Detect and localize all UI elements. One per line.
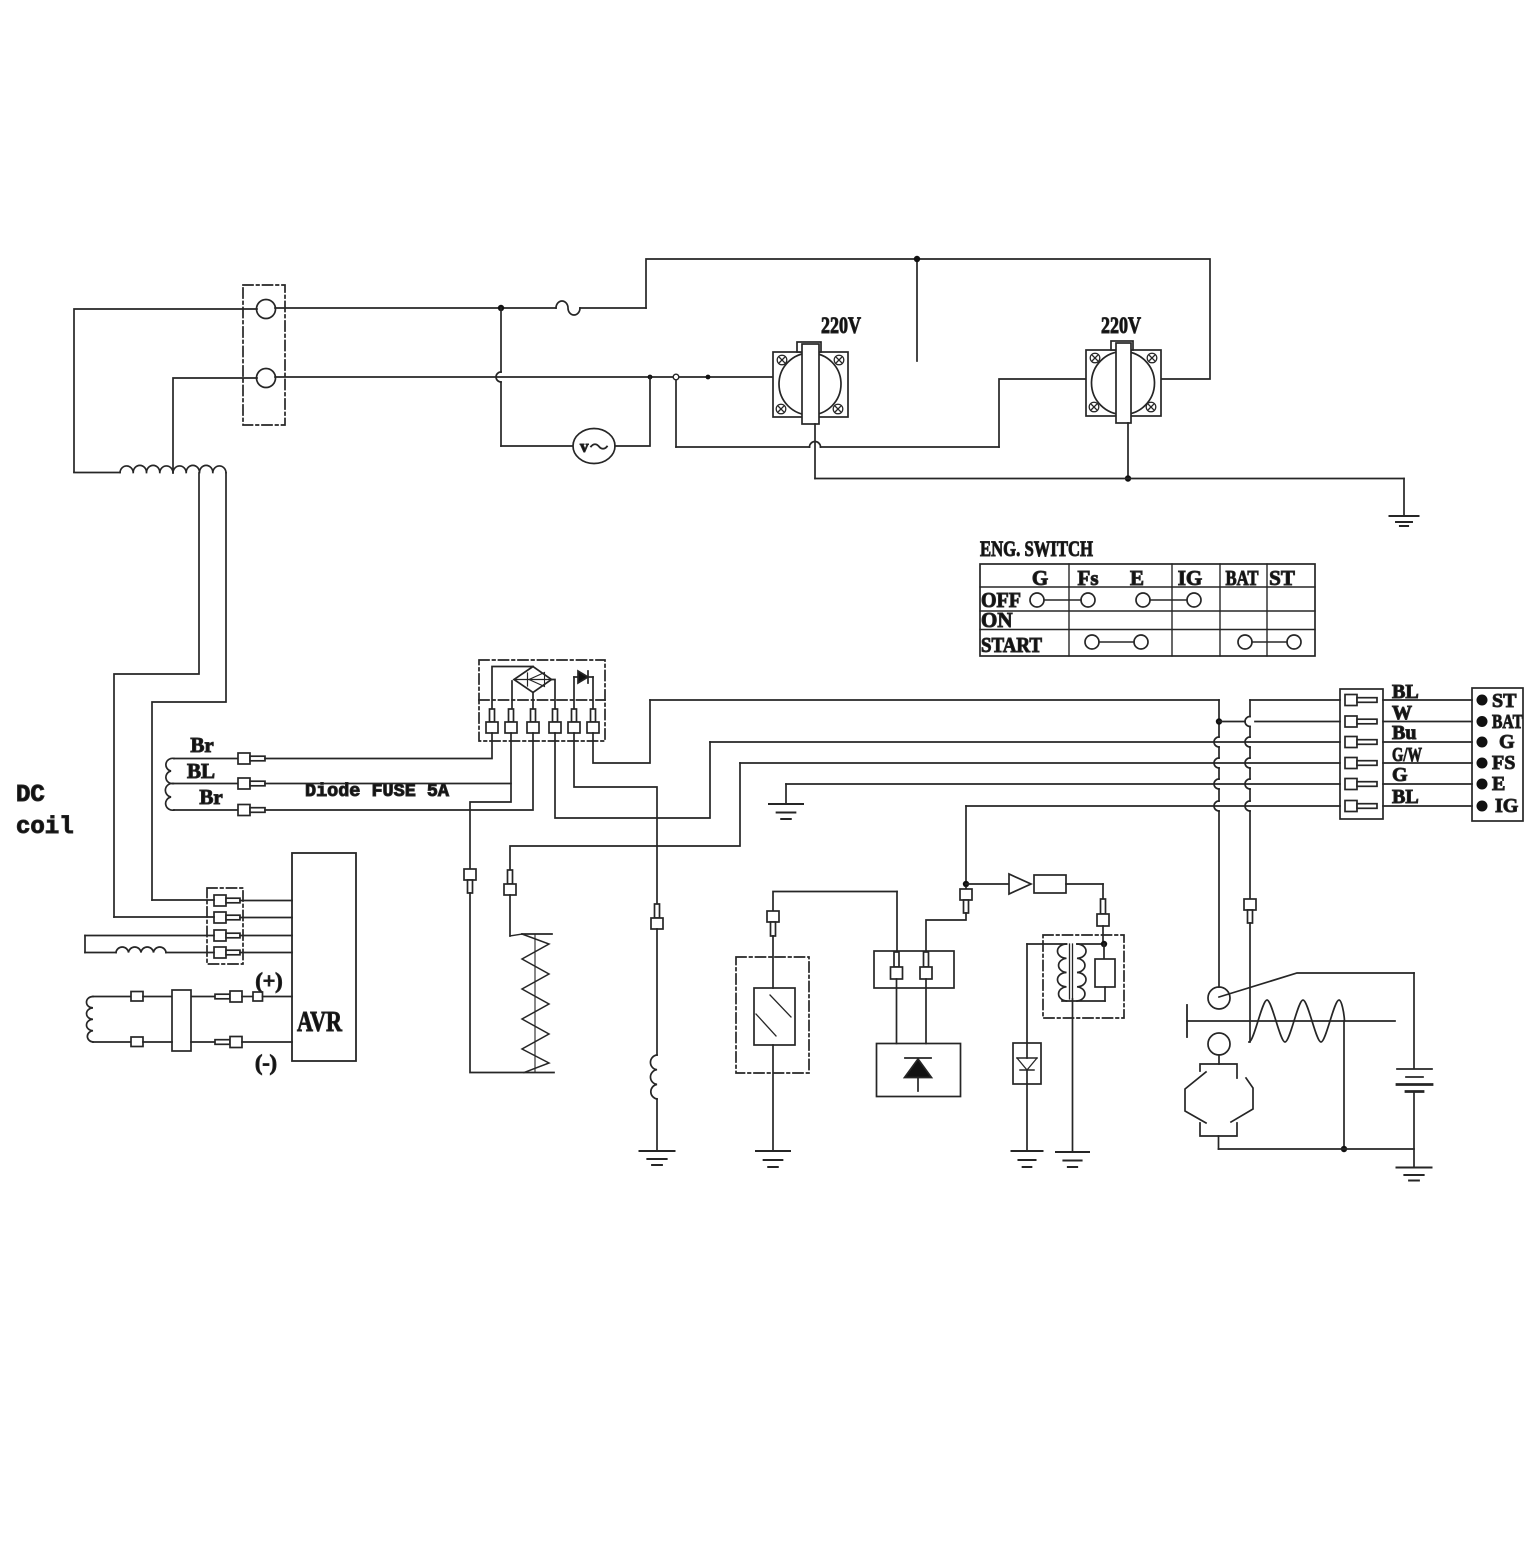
svg-text:v: v [580, 437, 589, 456]
svg-text:IG: IG [1178, 566, 1203, 590]
svg-text:BAT: BAT [1492, 711, 1524, 733]
svg-text:G: G [1499, 731, 1515, 753]
svg-text:(+): (+) [255, 968, 282, 993]
svg-text:ST: ST [1269, 566, 1295, 590]
svg-text:ENG. SWITCH: ENG. SWITCH [980, 536, 1093, 561]
svg-text:E: E [1492, 773, 1505, 795]
svg-text:Br: Br [190, 733, 213, 757]
svg-text:BAT: BAT [1226, 566, 1259, 590]
svg-text:AVR: AVR [297, 1006, 343, 1038]
svg-text:FS: FS [1492, 752, 1515, 774]
svg-text:Fs: Fs [1078, 566, 1099, 590]
svg-text:START: START [981, 633, 1042, 657]
svg-text:Br: Br [199, 785, 222, 809]
svg-text:coil: coil [16, 814, 74, 841]
svg-text:IG: IG [1495, 795, 1519, 817]
svg-text:BL: BL [1392, 786, 1419, 808]
svg-text:220V: 220V [821, 313, 861, 339]
svg-text:Bu: Bu [1392, 722, 1416, 744]
svg-text:ST: ST [1492, 690, 1517, 712]
svg-text:Diode FUSE 5A: Diode FUSE 5A [305, 781, 450, 802]
svg-text:DC: DC [16, 782, 45, 809]
svg-text:G: G [1392, 764, 1408, 786]
svg-text:220V: 220V [1101, 313, 1141, 339]
svg-text:G: G [1032, 566, 1048, 590]
svg-text:ON: ON [981, 608, 1013, 632]
svg-text:(-): (-) [255, 1050, 277, 1075]
svg-text:E: E [1130, 566, 1144, 590]
svg-text:BL: BL [187, 759, 215, 783]
